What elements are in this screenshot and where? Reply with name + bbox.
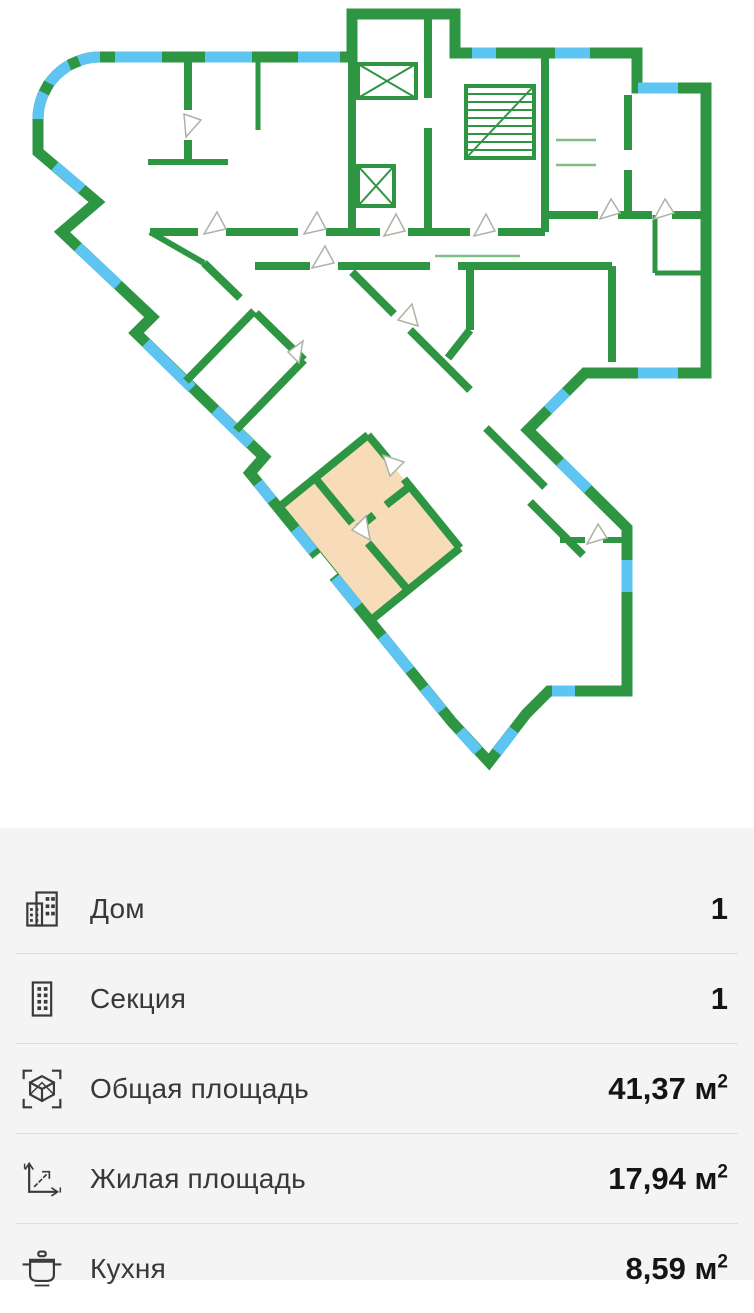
building-icon xyxy=(20,977,64,1021)
living-area-value: 17,94 м2 xyxy=(608,1161,728,1197)
apartment-info-panel: Дом 1 Секция 1 xyxy=(0,828,754,1280)
house-value: 1 xyxy=(711,891,728,927)
living-area-label: Жилая площадь xyxy=(90,1163,306,1195)
info-row-total-area: Общая площадь 41,37 м2 xyxy=(0,1044,754,1133)
section-value: 1 xyxy=(711,981,728,1017)
section-label: Секция xyxy=(90,983,186,1015)
window-segments xyxy=(38,53,678,752)
highlighted-apartment[interactable] xyxy=(278,435,460,621)
total-area-label: Общая площадь xyxy=(90,1073,309,1105)
interior-walls xyxy=(148,14,706,555)
info-row-house: Дом 1 xyxy=(0,864,754,953)
house-label: Дом xyxy=(90,893,145,925)
info-row-section: Секция 1 xyxy=(0,954,754,1043)
floor-plan xyxy=(0,0,754,828)
info-row-living-area: Жилая площадь 17,94 м2 xyxy=(0,1134,754,1223)
floor-plan-svg xyxy=(0,0,754,828)
total-area-value: 41,37 м2 xyxy=(608,1071,728,1107)
kitchen-value: 8,59 м2 xyxy=(626,1251,728,1287)
staircase xyxy=(466,86,534,158)
exterior-walls xyxy=(38,14,706,762)
living-area-icon xyxy=(20,1157,64,1201)
area-cube-icon xyxy=(20,1067,64,1111)
elevator-shaft-2 xyxy=(358,166,394,206)
info-row-kitchen: Кухня 8,59 м2 xyxy=(0,1224,754,1313)
kitchen-pot-icon xyxy=(20,1247,64,1291)
elevator-shaft-1 xyxy=(358,64,416,98)
buildings-icon xyxy=(20,887,64,931)
